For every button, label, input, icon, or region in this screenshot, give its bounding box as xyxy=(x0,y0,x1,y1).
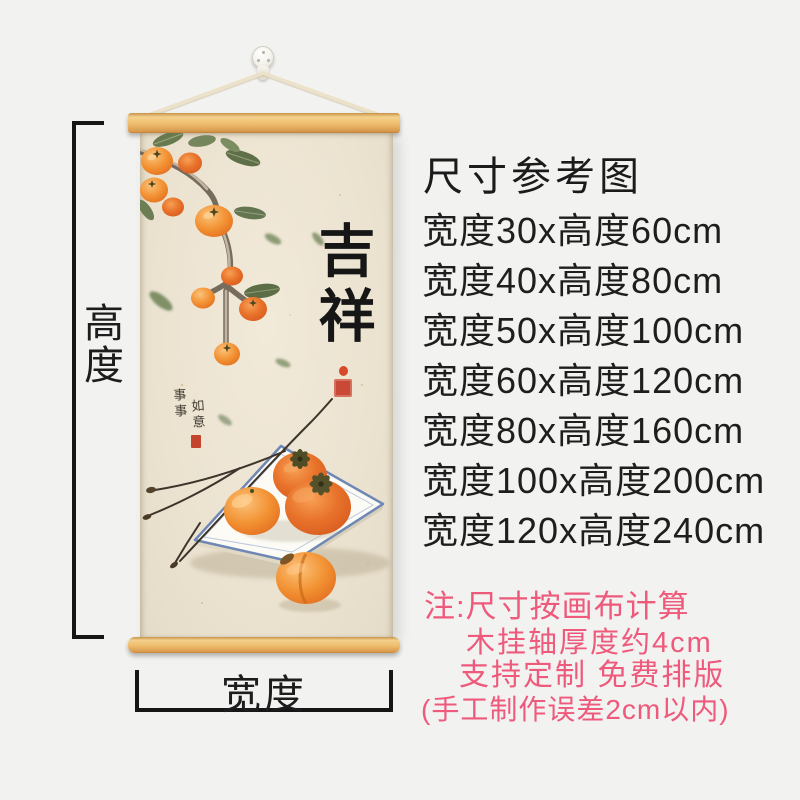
height-label: 高度 xyxy=(79,302,121,386)
size-list: 宽度30x高度60cm 宽度40x高度80cm 宽度50x高度100cm 宽度6… xyxy=(422,206,765,556)
seal-dot-icon xyxy=(339,366,348,376)
size-option: 宽度120x高度240cm xyxy=(422,506,765,556)
bottom-wood-rod xyxy=(128,637,400,653)
plate-scene xyxy=(142,399,390,612)
height-bracket-top-cap xyxy=(72,121,104,125)
size-option: 宽度30x高度60cm xyxy=(422,206,765,256)
scroll-canvas xyxy=(140,133,393,637)
artist-seal-icon xyxy=(334,379,352,397)
size-option: 宽度80x高度160cm xyxy=(422,406,765,456)
persimmon-painting-illustration xyxy=(140,133,393,637)
height-bracket-line xyxy=(72,121,76,639)
calligraphy-text: 吉祥 xyxy=(310,221,374,351)
note-handmade-tolerance: (手工制作误差2cm以内) xyxy=(421,688,730,728)
size-chart-title: 尺寸参考图 xyxy=(423,144,643,202)
size-option: 宽度60x高度120cm xyxy=(422,356,765,406)
height-bracket-bottom-cap xyxy=(72,635,104,639)
size-option: 宽度50x高度100cm xyxy=(422,306,765,356)
size-option: 宽度40x高度80cm xyxy=(422,256,765,306)
hanging-persimmons xyxy=(140,147,267,366)
width-label: 宽度 xyxy=(135,662,393,720)
inscription-column-2: 如意 xyxy=(188,399,205,432)
top-wood-rod xyxy=(128,113,400,133)
inscription-column-1: 事事 xyxy=(170,388,187,421)
size-option: 宽度100x高度200cm xyxy=(422,456,765,506)
inscription-seal-icon xyxy=(191,435,201,448)
size-reference-diagram: 吉祥 事事 如意 高度 宽度 尺寸参考图 宽度30x高度60cm 宽度40x高度… xyxy=(0,0,800,800)
